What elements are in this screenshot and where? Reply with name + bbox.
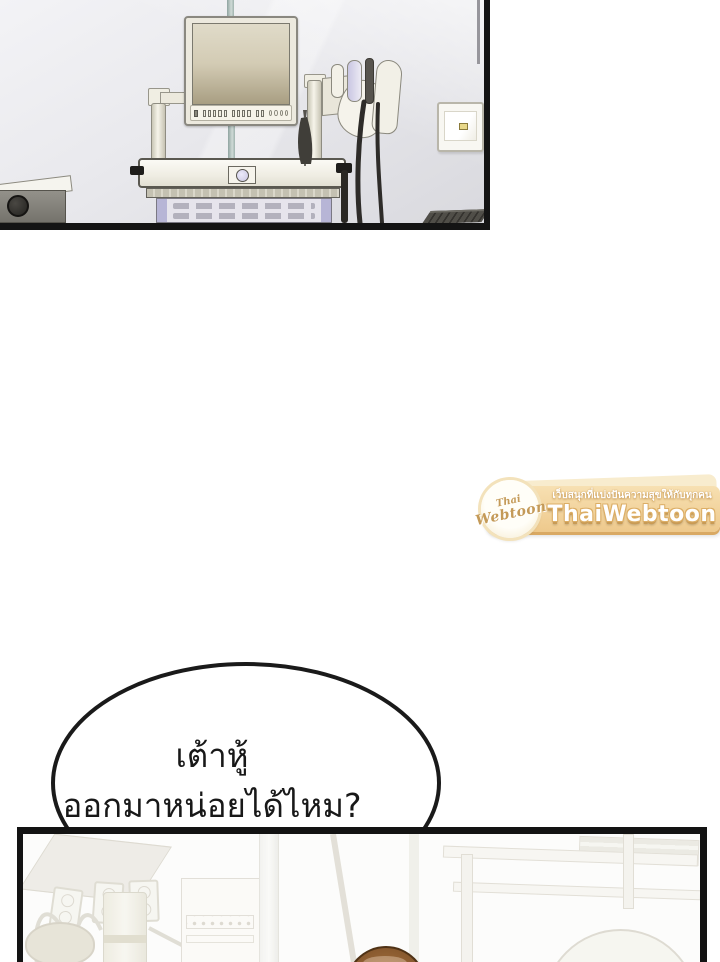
comic-panel-top: [0, 0, 490, 230]
tank-band: [104, 935, 146, 943]
wall-divider: [409, 834, 419, 962]
cylinder-tank: [103, 892, 147, 962]
comic-panel-bottom: [17, 827, 707, 962]
equipment-rack: [181, 878, 261, 962]
cart-frame-pole-right: [623, 834, 634, 909]
faded-background-scene: [23, 834, 700, 962]
dialogue-line-2: ออกมาหน่อยได้ไหม?: [62, 781, 362, 831]
watermark-title: ThaiWebtoon: [547, 502, 717, 527]
connector-ports: [186, 915, 254, 929]
hanging-probe-handle: [298, 117, 312, 164]
probe-cables: [0, 0, 490, 230]
pot-equipment: [25, 922, 95, 962]
thaiwebtoon-watermark: เว็บสนุกที่แบ่งปันความสุขให้กับทุกคน Tha…: [483, 478, 720, 540]
cart-frame-pole-left: [461, 854, 473, 962]
curtain-strip: [259, 834, 279, 962]
thaiwebtoon-logo: Thai Webtoon: [481, 480, 539, 538]
speech-bubble-text: เต้าหู้ ออกมาหน่อยได้ไหม?: [62, 731, 362, 830]
dialogue-line-1: เต้าหู้: [62, 731, 362, 781]
webtoon-page: เว็บสนุกที่แบ่งปันความสุขให้กับทุกคน Tha…: [0, 0, 720, 962]
watermark-slogan: เว็บสนุกที่แบ่งปันความสุขให้กับทุกคน: [547, 490, 717, 501]
hair-highlight: [363, 956, 407, 962]
rack-slot: [186, 935, 254, 943]
